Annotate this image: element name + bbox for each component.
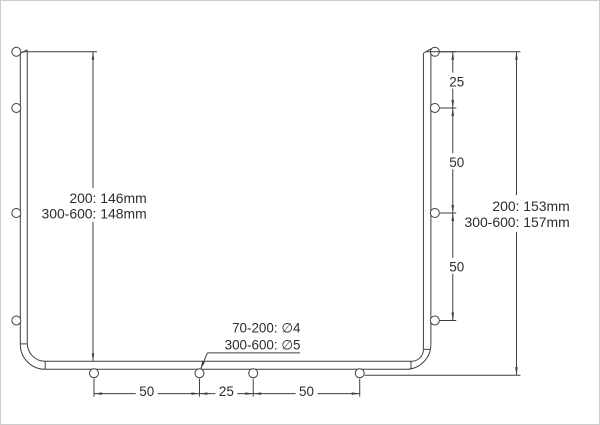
right-dimension-label-line2: 300-600: 157mm	[464, 214, 569, 230]
arrowhead-down-icon	[451, 100, 454, 108]
hole	[430, 209, 439, 218]
right-bend-outer-arc	[406, 344, 431, 369]
left-bend-inner-arc	[27, 343, 45, 361]
hole	[12, 104, 21, 113]
left-height-dimension: 200: 146mm 300-600: 148mm	[22, 52, 149, 362]
spacing-label: 25	[219, 384, 234, 399]
arrowhead-down-icon	[451, 313, 454, 321]
mounting-holes-left	[12, 47, 21, 325]
hole	[12, 47, 21, 56]
hole-note-line1: 70-200: ∅4	[232, 320, 301, 335]
hole	[12, 209, 21, 218]
hole-note-line2: 300-600: ∅5	[225, 337, 301, 352]
spacing-label: 50	[139, 384, 154, 399]
right-dimension-label-line1: 200: 153mm	[492, 198, 569, 214]
right-hole-spacing-dimension: 25 50 50	[440, 52, 468, 321]
u-channel-drawing: 200: 146mm 300-600: 148mm 200: 153mm 300…	[1, 1, 599, 424]
right-height-dimension: 200: 153mm 300-600: 157mm	[365, 52, 574, 375]
arrowhead-up-icon	[451, 213, 454, 221]
arrowhead-up-icon	[92, 52, 95, 60]
spacing-label: 50	[449, 260, 464, 275]
spacing-label: 50	[449, 155, 464, 170]
hole-diameter-note: 70-200: ∅4 300-600: ∅5	[200, 320, 301, 369]
bottom-hole-spacing-dimension: 50 25 50	[94, 379, 360, 400]
arrowhead-left-icon	[253, 392, 261, 395]
arrowhead-down-icon	[451, 205, 454, 213]
arrowhead-left-icon	[199, 392, 207, 395]
hole	[430, 104, 439, 113]
right-bend-inner-arc	[411, 349, 423, 361]
left-dimension-label-line2: 300-600: 148mm	[41, 205, 146, 221]
mounting-holes-right	[430, 47, 439, 325]
arrowhead-right-icon	[245, 392, 253, 395]
arrowhead-up-icon	[451, 108, 454, 116]
arrowhead-down-icon	[515, 367, 518, 375]
right-leg-top-cap	[423, 49, 430, 53]
arrowhead-up-icon	[451, 52, 454, 60]
hole	[249, 369, 258, 378]
arrowhead-left-icon	[94, 392, 102, 395]
leader-arrowhead-icon	[200, 361, 204, 369]
spacing-label: 50	[299, 384, 314, 399]
left-dimension-label-line1: 200: 146mm	[69, 190, 146, 206]
arrowhead-right-icon	[192, 392, 200, 395]
hole	[430, 316, 439, 325]
arrowhead-right-icon	[352, 392, 360, 395]
technical-drawing-canvas: 200: 146mm 300-600: 148mm 200: 153mm 300…	[0, 0, 600, 425]
spacing-label: 25	[449, 75, 464, 90]
hole	[195, 369, 204, 378]
mounting-holes-bottom	[89, 369, 364, 378]
hole	[89, 369, 98, 378]
arrowhead-down-icon	[92, 353, 95, 361]
arrowhead-up-icon	[515, 52, 518, 60]
hole	[355, 369, 364, 378]
hole	[12, 316, 21, 325]
